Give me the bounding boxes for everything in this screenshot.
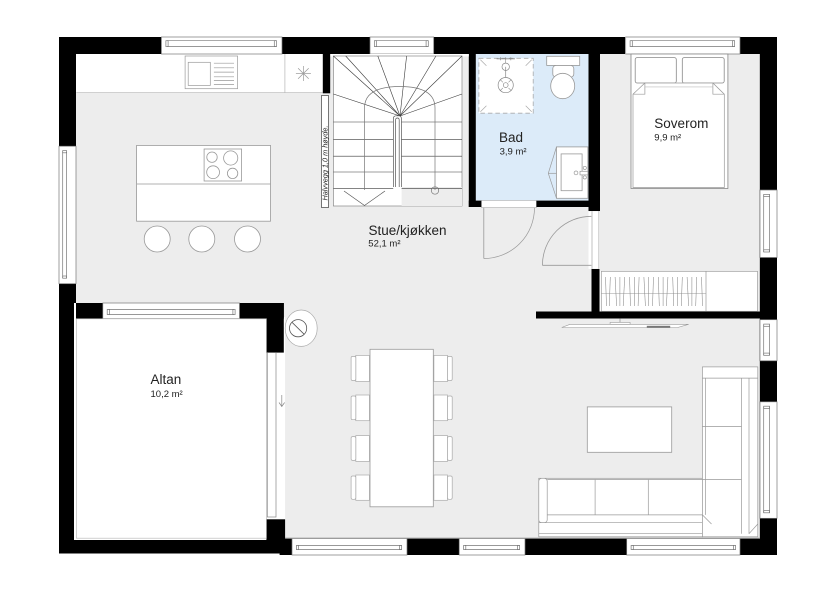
svg-text:Altan: Altan	[151, 372, 182, 387]
svg-text:9,9 m²: 9,9 m²	[654, 132, 681, 143]
svg-text:52,1 m²: 52,1 m²	[368, 239, 400, 250]
svg-text:Bad: Bad	[499, 130, 523, 145]
svg-text:10,2 m²: 10,2 m²	[151, 389, 183, 400]
svg-text:Soverom: Soverom	[654, 116, 708, 131]
svg-text:Halvvegg 1,0 m høyde.: Halvvegg 1,0 m høyde.	[320, 125, 329, 200]
svg-text:Stue/kjøkken: Stue/kjøkken	[369, 223, 447, 238]
svg-text:3,9 m²: 3,9 m²	[500, 146, 527, 157]
